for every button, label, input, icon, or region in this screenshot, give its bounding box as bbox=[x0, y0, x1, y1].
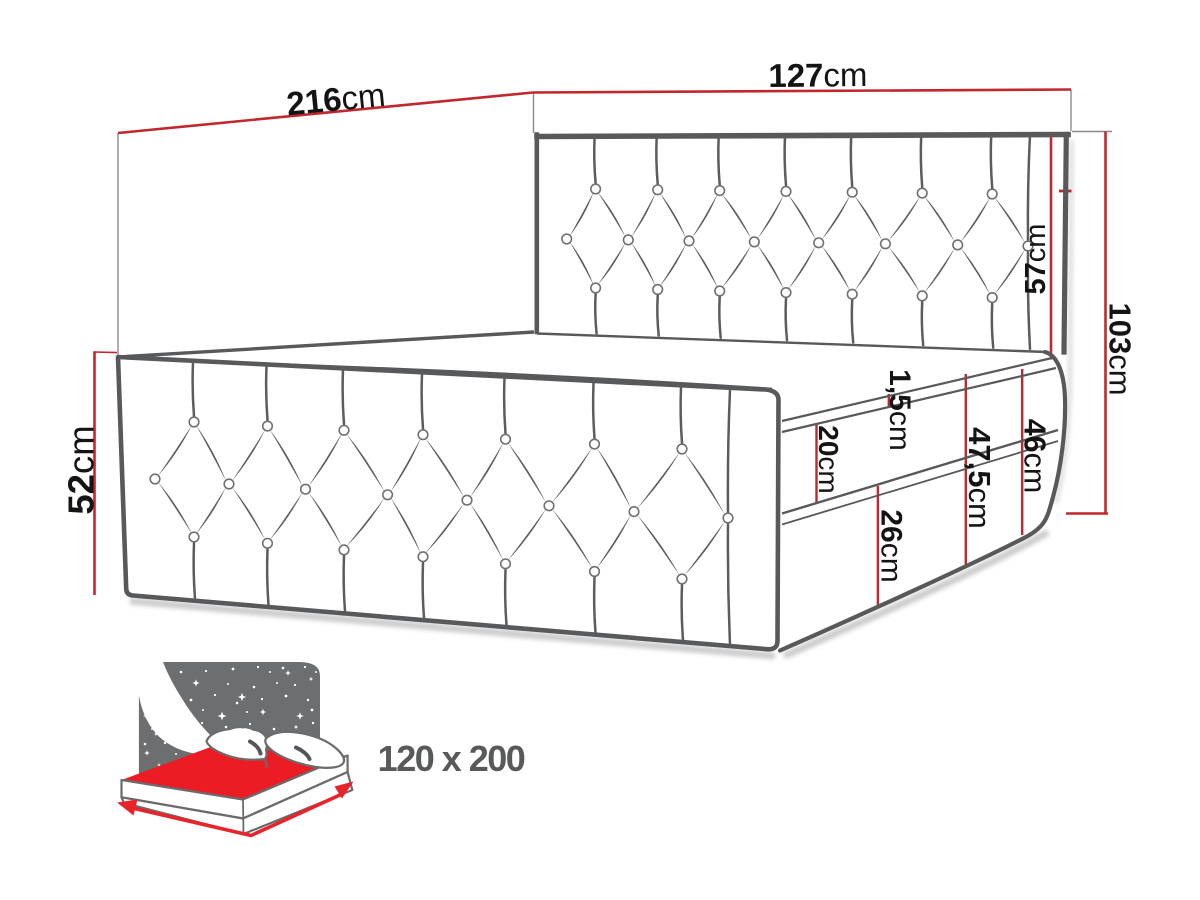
svg-text:57cm: 57cm bbox=[1020, 224, 1052, 295]
svg-text:20cm: 20cm bbox=[813, 425, 844, 493]
svg-text:26cm: 26cm bbox=[875, 509, 908, 582]
svg-text:103cm: 103cm bbox=[1103, 302, 1138, 395]
svg-text:1,5cm: 1,5cm bbox=[883, 369, 916, 451]
svg-text:120 x 200: 120 x 200 bbox=[378, 738, 525, 779]
svg-text:46cm: 46cm bbox=[1018, 419, 1052, 494]
svg-text:47,5cm: 47,5cm bbox=[962, 427, 997, 529]
svg-text:52cm: 52cm bbox=[61, 425, 102, 514]
svg-text:127cm: 127cm bbox=[768, 56, 867, 94]
